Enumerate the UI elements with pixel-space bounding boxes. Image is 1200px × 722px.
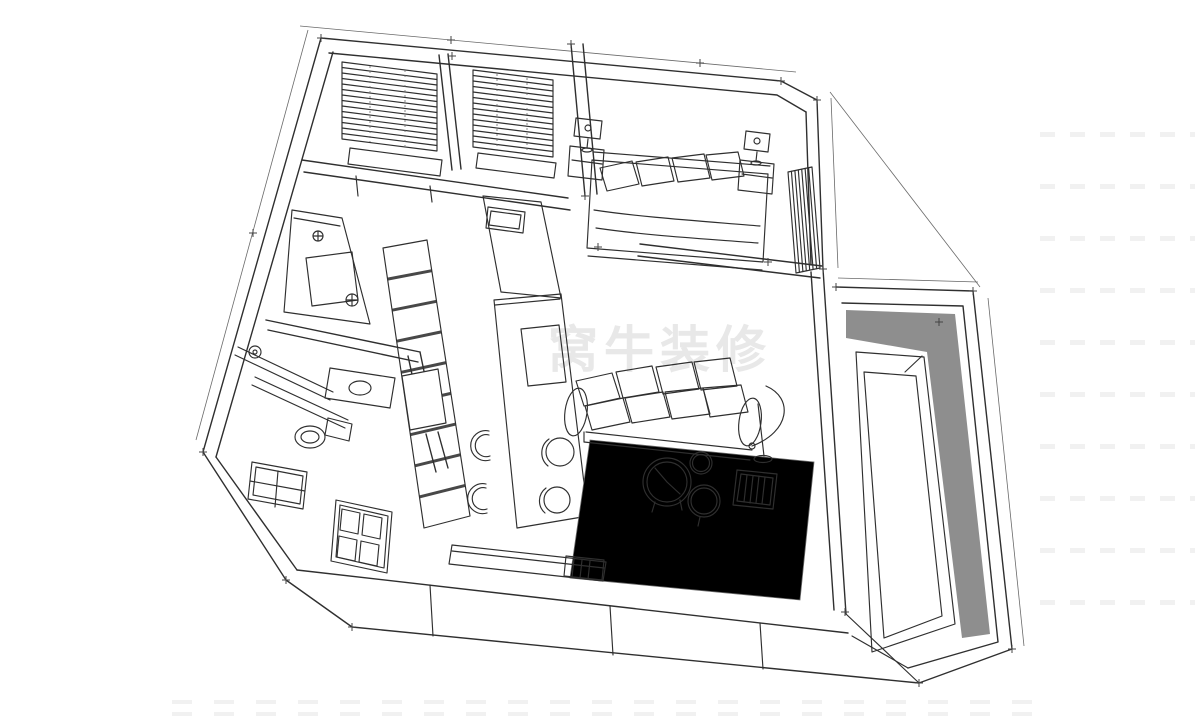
vanity-basin — [325, 294, 395, 408]
sketch-canvas: 窝牛装修 — [0, 0, 1200, 722]
floor-drain — [249, 346, 261, 358]
slatted-wardrobe — [788, 167, 820, 273]
glass-shower-panels — [235, 347, 348, 428]
nightstand-right — [738, 131, 774, 194]
interior-walls — [266, 44, 822, 472]
pouf-stools — [539, 438, 574, 513]
bathroom — [235, 294, 395, 509]
floorplan-sketch — [0, 0, 1200, 722]
nightstand-left — [568, 118, 604, 180]
cooktop-hatch — [306, 252, 358, 306]
venetian-blind-window-right — [473, 70, 556, 178]
cooktop-hatch-island — [521, 325, 566, 386]
kitchen — [284, 196, 588, 528]
balcony — [836, 287, 1012, 683]
bar-stools — [468, 431, 490, 514]
toilet — [295, 418, 352, 448]
bedroom — [568, 118, 820, 273]
exterior-walls — [203, 38, 919, 683]
wall-counter — [284, 210, 370, 324]
dressing-room — [342, 54, 556, 202]
window-bench — [348, 148, 442, 202]
striped-cabinet-run — [383, 240, 470, 528]
divider-wall — [439, 54, 461, 170]
dimension-ticks — [199, 34, 1016, 687]
double-bed — [587, 152, 770, 270]
entry — [331, 500, 392, 573]
exterior-window — [248, 462, 307, 509]
venetian-blind-window-left — [342, 62, 437, 151]
arc-floor-lamp — [749, 386, 784, 463]
paneled-door — [331, 500, 392, 573]
island-peninsula — [483, 196, 588, 528]
arm-rest-left — [562, 387, 590, 438]
